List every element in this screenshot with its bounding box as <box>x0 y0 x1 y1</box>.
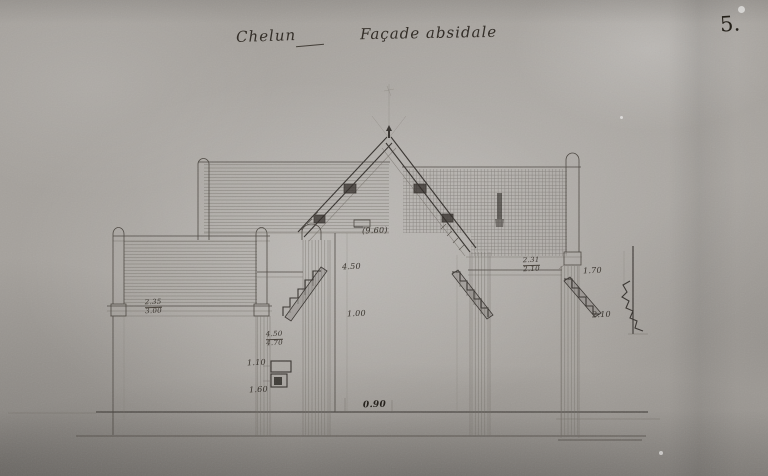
plate-number: 5. <box>719 11 741 36</box>
dim-left-base-denominator: 4.70 <box>266 340 283 348</box>
dim-aisle-denominator: 3.00 <box>145 308 162 316</box>
handwritten-subject: Façade absidale <box>360 23 497 43</box>
dim-outer-steps-bottom: 2.10 <box>592 311 611 320</box>
dim-right-ledge-fraction: 2.31 2.10 <box>523 257 540 274</box>
archival-photograph: Chelun Façade absidale 5. (9.60) 2.35 3.… <box>0 0 768 476</box>
dim-aisle-fraction: 2.35 3.00 <box>145 299 162 316</box>
dim-moulding-top: 1.10 <box>247 359 266 368</box>
photo-speck <box>659 451 663 455</box>
dim-left-steps-mid: 1.00 <box>347 310 366 319</box>
dim-ground-width: 0.90 <box>363 401 386 411</box>
photo-speck <box>620 116 623 119</box>
dim-right-ledge-denominator: 2.10 <box>523 266 540 274</box>
dim-left-steps-top: 4.50 <box>342 263 361 272</box>
handwritten-location: Chelun <box>236 26 297 46</box>
dim-nave-width: (9.60) <box>362 227 388 236</box>
photo-speck <box>738 6 745 13</box>
dim-left-base-fraction: 4.50 4.70 <box>266 331 283 348</box>
dim-moulding-bottom: 1.60 <box>249 386 268 395</box>
dim-outer-steps-top: 1.70 <box>583 267 602 276</box>
